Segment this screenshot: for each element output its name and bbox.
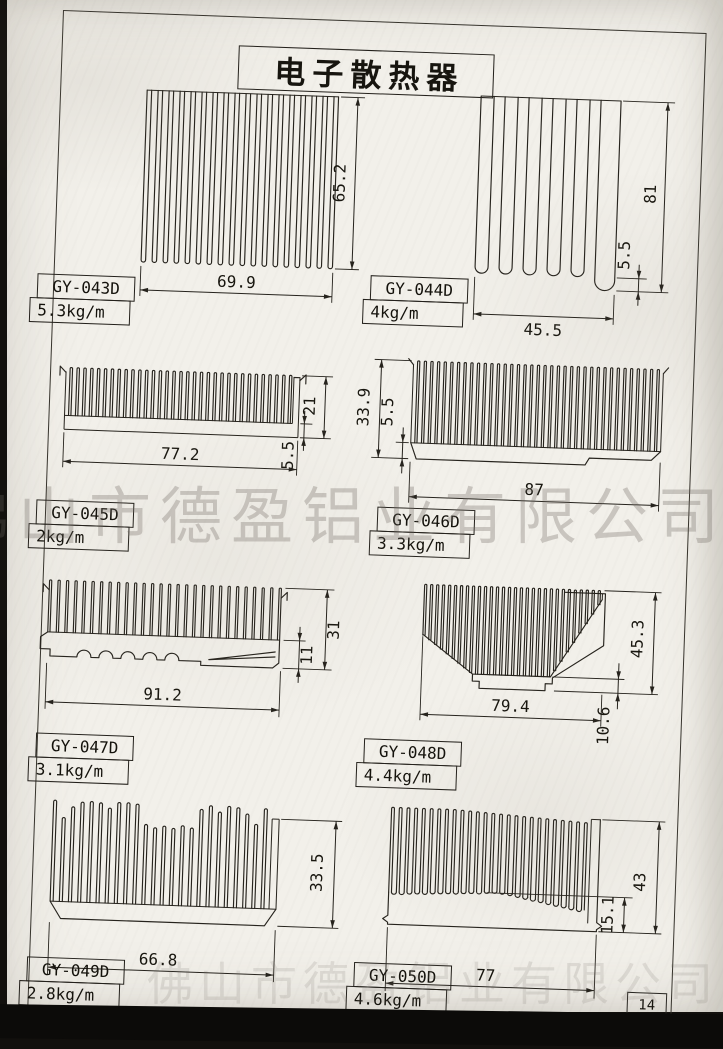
- heatsink-profile-gy-044d-svg: 45.5 81 5.5: [454, 87, 713, 348]
- weight-value: 3.1kg/m: [27, 756, 129, 785]
- profile-drawing-gy-048d: 79.4 45.3 10.6: [404, 569, 723, 761]
- watermark-company: 佛山市德盈铝业有限公司: [0, 466, 723, 556]
- dim-width-label: 91.2: [143, 684, 182, 704]
- weight-value: 4.4kg/m: [355, 762, 457, 791]
- dim-height-label: 65.2: [329, 163, 349, 202]
- model-label-gy-048d: GY-048D 4.4kg/m: [355, 738, 462, 791]
- profile-drawing-gy-043d: 69.9 65.2: [131, 82, 379, 322]
- dim-width-label: 69.9: [217, 272, 256, 292]
- model-code: GY-049D: [26, 956, 125, 984]
- dim-width-label: 77.2: [161, 444, 200, 464]
- profile-drawing-gy-047d: 91.2 31 11: [34, 568, 360, 747]
- dim-height-label: 33.9: [353, 387, 373, 426]
- dim-width-label: 45.5: [523, 320, 562, 340]
- model-code: GY-043D: [37, 273, 136, 301]
- dim-width-label: 79.4: [491, 696, 530, 716]
- weight-value: 4kg/m: [362, 299, 464, 328]
- dim-base-label: 11: [297, 645, 317, 665]
- dim-height-label: 31: [324, 620, 344, 640]
- watermark-company-bottom: 佛山市德盈铝业有限公司: [147, 948, 719, 1014]
- heatsink-profile-gy-047d-svg: 91.2 31 11: [34, 568, 360, 747]
- heatsink-profile-gy-043d-svg: 69.9 65.2: [131, 82, 379, 322]
- model-label-gy-044d: GY-044D 4kg/m: [362, 275, 469, 328]
- model-code: GY-048D: [363, 738, 462, 766]
- dim-base-label: 10.6: [593, 706, 613, 745]
- model-label-gy-049d: GY-049D 2.8kg/m: [18, 956, 125, 1009]
- dim-height-label: 33.5: [307, 853, 327, 892]
- model-code: GY-047D: [35, 733, 134, 761]
- model-label-gy-043d: GY-043D 5.3kg/m: [29, 273, 136, 326]
- dim-base-label: 5.5: [614, 240, 634, 270]
- weight-value: 5.3kg/m: [29, 297, 131, 326]
- profile-drawing-gy-044d: 45.5 81 5.5: [454, 87, 713, 348]
- dim-height-label: 45.3: [627, 619, 647, 658]
- heatsink-profile-gy-048d-svg: 79.4 45.3 10.6: [404, 569, 723, 761]
- dim-height-label: 81: [640, 184, 660, 204]
- dim-height-label: 21: [300, 396, 320, 416]
- scanned-page: 佛山市德盈铝业有限公司 佛山市德盈铝业有限公司 电子散热器 69.9 65.2 …: [7, 0, 723, 1012]
- model-label-gy-047d: GY-047D 3.1kg/m: [27, 732, 134, 785]
- model-code: GY-044D: [370, 275, 469, 303]
- dim-height-label: 43: [630, 872, 650, 892]
- dim-base-label: 15.1: [597, 895, 617, 934]
- dim-base-label: 5.5: [377, 397, 397, 427]
